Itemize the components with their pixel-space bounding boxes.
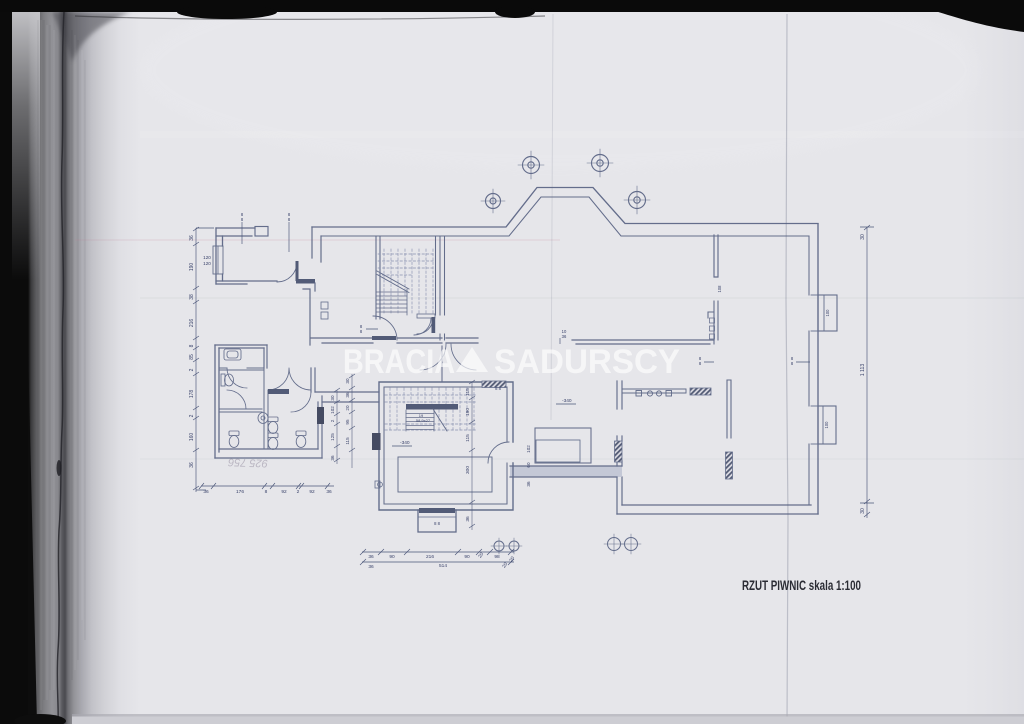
svg-text:2: 2: [189, 414, 195, 417]
svg-text:1 113: 1 113: [860, 364, 866, 377]
svg-text:60: 60: [526, 462, 531, 468]
svg-text:92: 92: [309, 489, 315, 495]
svg-text:38: 38: [189, 294, 195, 300]
svg-text:36: 36: [368, 554, 374, 560]
svg-text:BRACIA: BRACIA: [343, 343, 455, 381]
svg-text:92: 92: [281, 489, 287, 495]
svg-text:-340: -340: [562, 398, 572, 404]
svg-text:2: 2: [297, 489, 300, 495]
svg-text:85: 85: [189, 354, 195, 360]
svg-text:90: 90: [464, 554, 470, 560]
svg-text:216: 216: [426, 554, 434, 560]
svg-text:-340: -340: [400, 440, 410, 446]
svg-text:36: 36: [326, 489, 332, 495]
svg-text:100: 100: [825, 309, 830, 317]
svg-text:95: 95: [345, 419, 350, 425]
svg-text:108: 108: [717, 285, 722, 293]
svg-text:36: 36: [368, 564, 374, 570]
svg-text:36: 36: [562, 334, 567, 339]
svg-text:8: 8: [189, 344, 195, 347]
svg-text:514: 514: [439, 563, 447, 569]
svg-text:115: 115: [345, 437, 350, 445]
svg-text:30: 30: [860, 508, 866, 514]
svg-text:20: 20: [345, 405, 350, 411]
svg-text:36: 36: [330, 455, 335, 461]
svg-text:190: 190: [189, 263, 195, 272]
svg-text:115: 115: [465, 434, 471, 442]
svg-text:925 756: 925 756: [227, 456, 268, 469]
svg-text:176: 176: [236, 489, 244, 495]
svg-text:190: 190: [465, 408, 471, 416]
svg-text:36: 36: [203, 489, 209, 495]
svg-text:2: 2: [330, 419, 335, 422]
svg-text:125: 125: [330, 433, 335, 441]
svg-text:36: 36: [526, 481, 531, 487]
svg-text:8 8: 8 8: [495, 386, 501, 391]
svg-text:98: 98: [494, 554, 500, 560]
svg-text:30: 30: [330, 395, 335, 401]
svg-text:216: 216: [189, 319, 195, 328]
svg-text:2: 2: [189, 368, 195, 371]
svg-text:120: 120: [203, 255, 211, 260]
svg-text:178: 178: [189, 390, 195, 399]
svg-text:102: 102: [330, 406, 335, 414]
svg-text:115: 115: [465, 388, 471, 396]
svg-text:8: 8: [265, 489, 268, 495]
svg-text:SADURSCY: SADURSCY: [494, 343, 680, 381]
svg-text:36: 36: [189, 462, 195, 468]
svg-text:160: 160: [189, 433, 195, 442]
svg-text:36: 36: [189, 235, 195, 241]
svg-text:8 8: 8 8: [434, 521, 440, 526]
svg-text:30: 30: [860, 234, 866, 240]
svg-text:300: 300: [465, 466, 471, 474]
svg-text:90: 90: [389, 554, 395, 560]
svg-text:120: 120: [203, 261, 211, 266]
svg-text:58,9x27: 58,9x27: [416, 418, 431, 423]
svg-text:100: 100: [824, 421, 829, 429]
svg-text:102: 102: [526, 445, 531, 453]
svg-text:36: 36: [465, 516, 471, 522]
svg-text:RZUT PIWNIC skala 1:100: RZUT PIWNIC skala 1:100: [742, 577, 861, 593]
svg-text:36: 36: [345, 392, 350, 398]
